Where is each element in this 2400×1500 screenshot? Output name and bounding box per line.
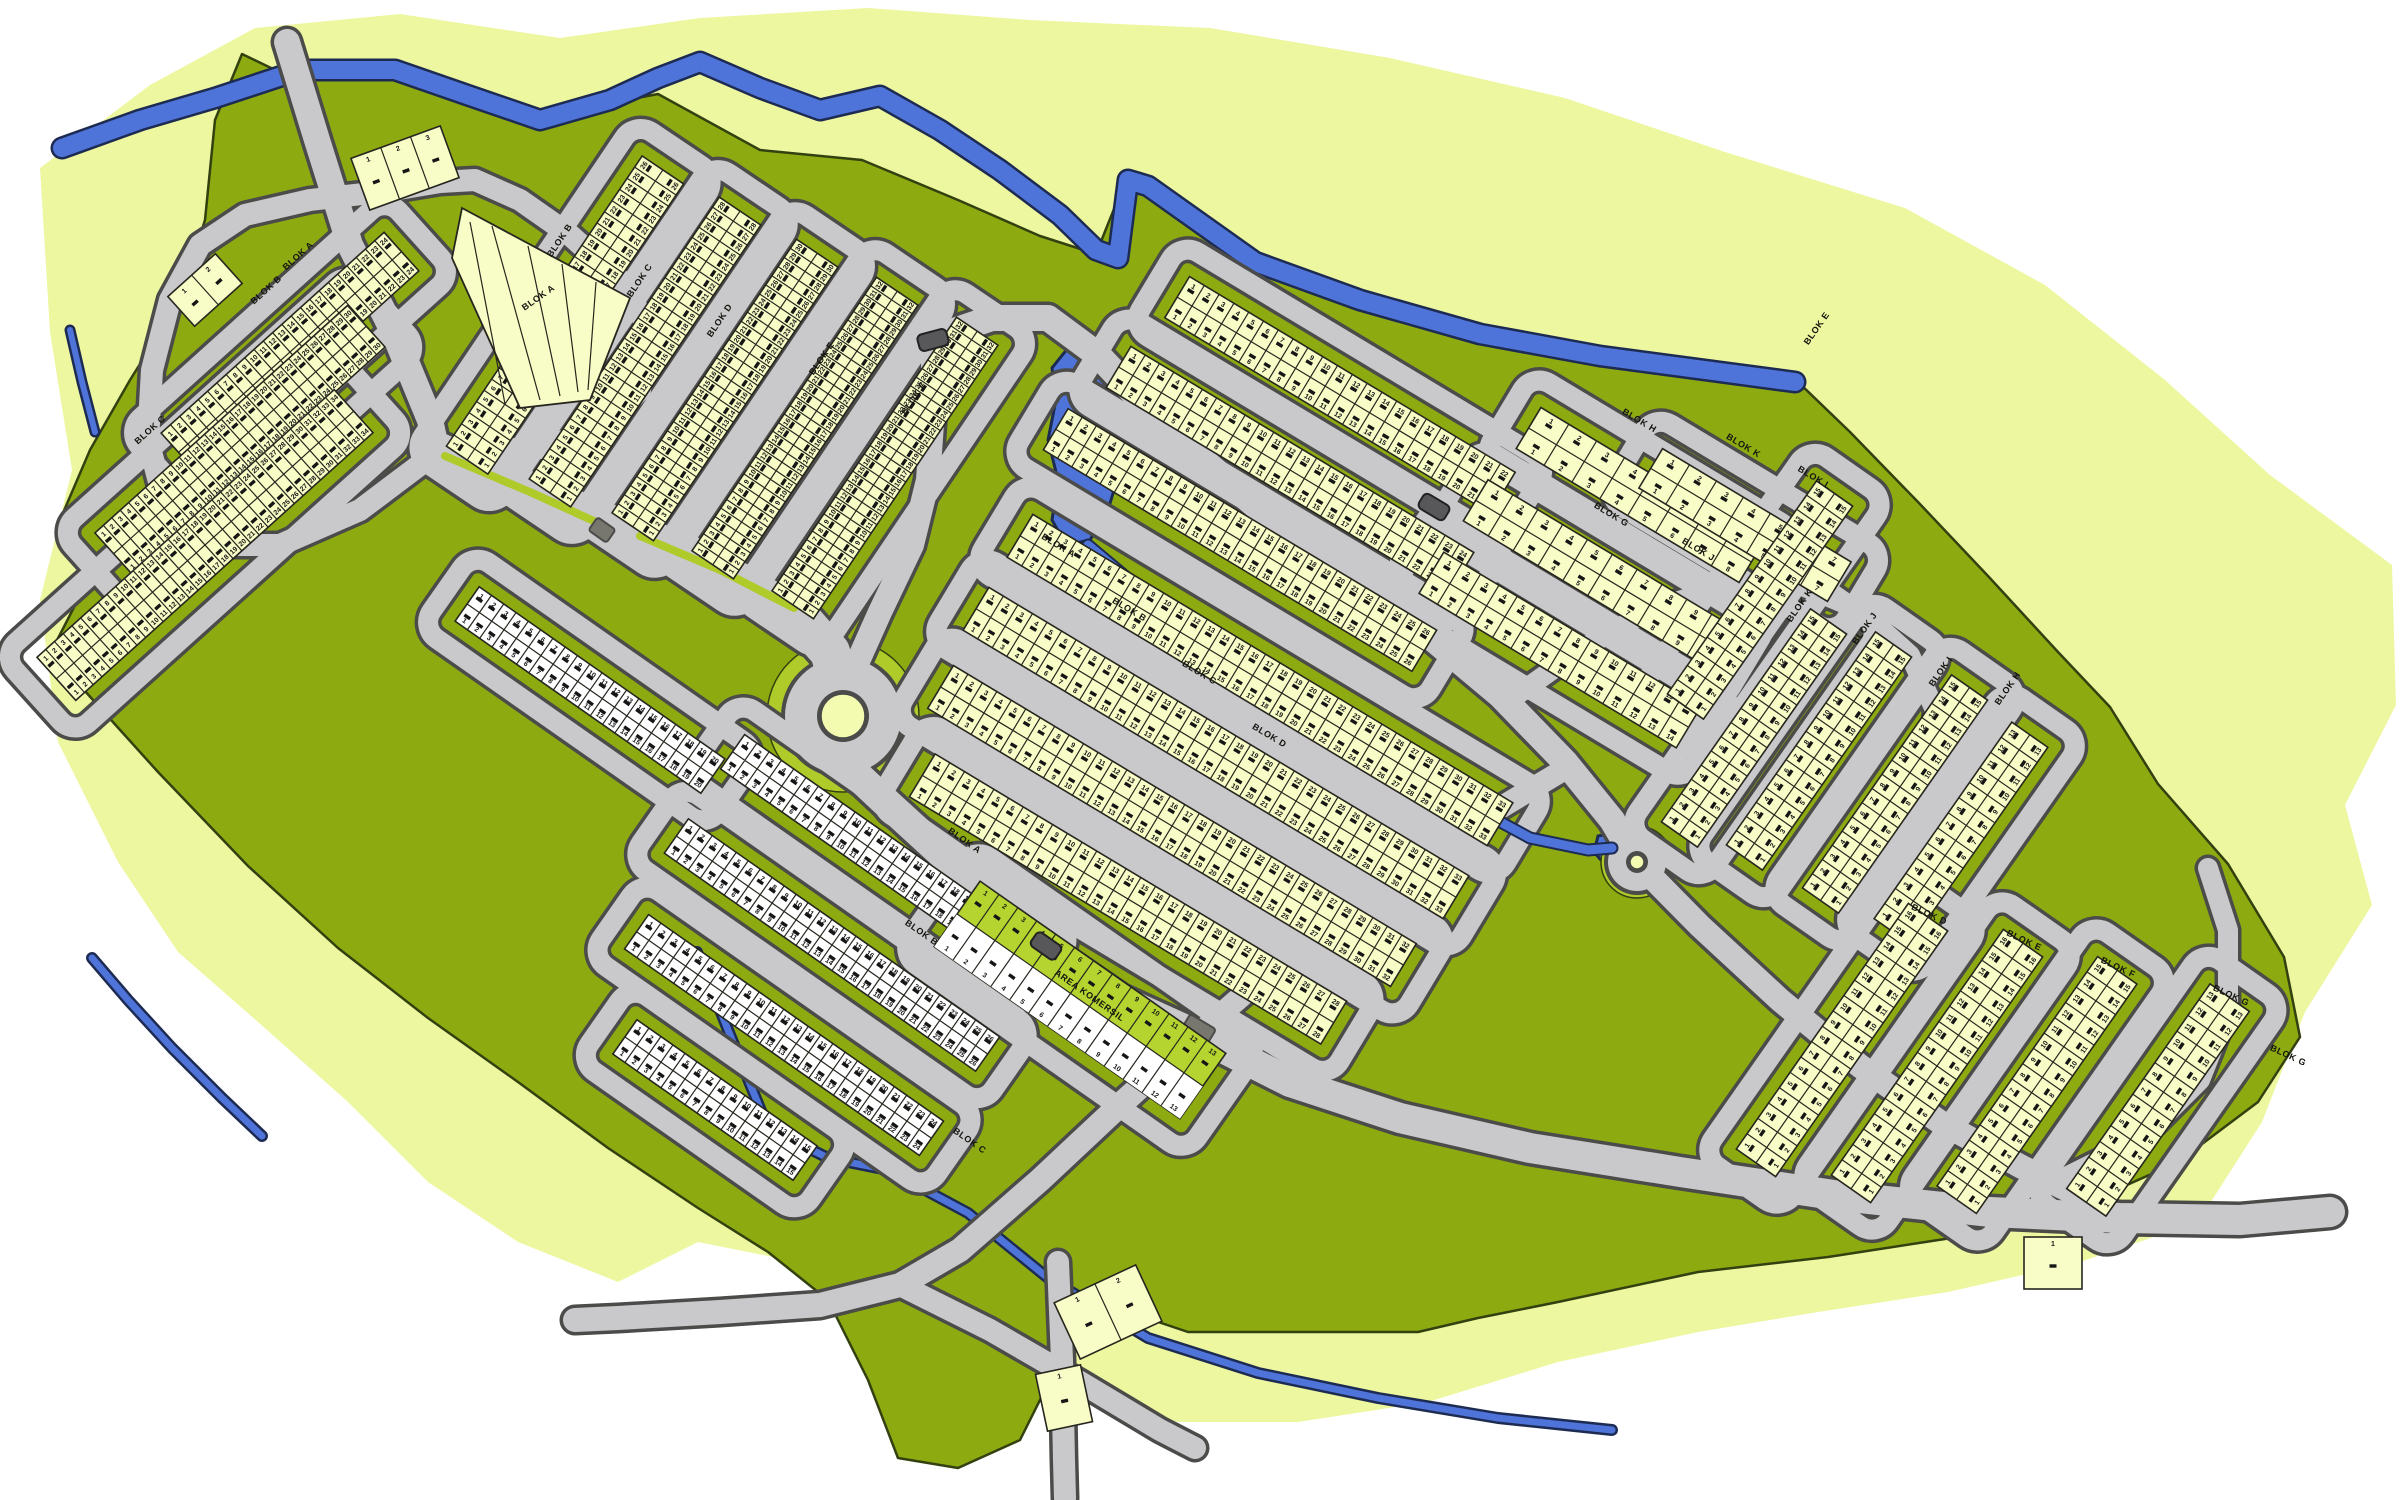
lot-marks [1061, 1400, 1068, 1401]
main-roundabout-island [821, 694, 865, 738]
site-plan-map: 1231234567891011121314151617181920212223… [0, 0, 2400, 1500]
block-southeast-single-lot: 1 [2024, 1237, 2082, 1289]
small-circle-island [1630, 855, 1644, 869]
site-plan-page: 1231234567891011121314151617181920212223… [0, 0, 2400, 1500]
lot-number: 1 [2051, 1241, 2055, 1248]
